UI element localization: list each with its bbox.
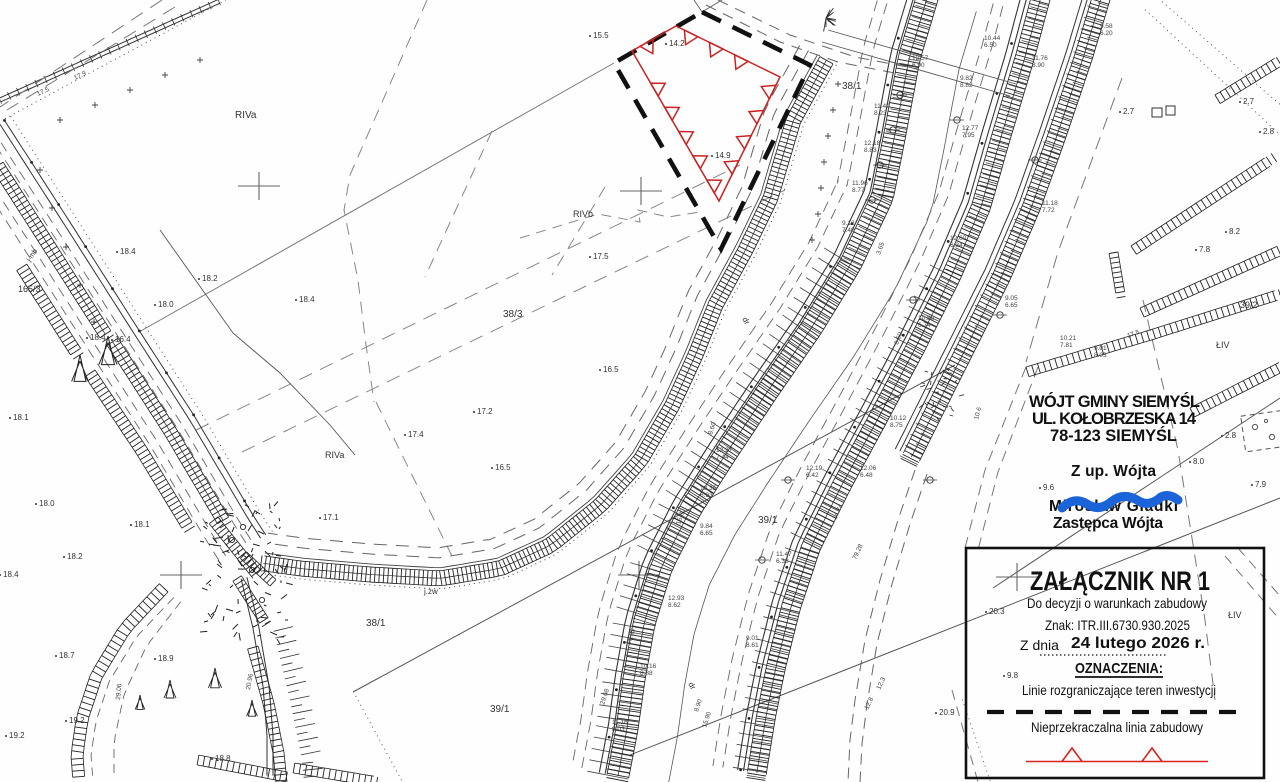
svg-text:7.81: 7.81 (1060, 342, 1073, 349)
svg-text:78-123 SIEMYŚL: 78-123 SIEMYŚL (1050, 426, 1177, 445)
svg-text:18.4: 18.4 (90, 333, 106, 342)
svg-text:16.5: 16.5 (603, 365, 619, 374)
svg-text:12.77: 12.77 (962, 125, 979, 132)
svg-text:12.18: 12.18 (864, 140, 881, 147)
svg-text:18.0: 18.0 (39, 499, 55, 508)
svg-text:9.01: 9.01 (1094, 345, 1107, 352)
svg-text:9.12: 9.12 (842, 220, 855, 227)
svg-text:10.88: 10.88 (918, 315, 935, 322)
svg-text:9.82: 9.82 (960, 75, 973, 82)
svg-text:2.7: 2.7 (1243, 97, 1255, 106)
svg-text:7.9: 7.9 (1255, 480, 1267, 489)
svg-text:18.1: 18.1 (134, 520, 150, 529)
svg-text:18.7: 18.7 (59, 651, 75, 660)
svg-text:165/3: 165/3 (18, 284, 41, 294)
svg-text:18.4: 18.4 (120, 247, 136, 256)
svg-text:Linie rozgraniczające teren in: Linie rozgraniczające teren inwestycji (1022, 683, 1216, 698)
svg-text:6.34: 6.34 (950, 242, 963, 249)
svg-text:11.18: 11.18 (1042, 200, 1058, 207)
svg-text:11.47: 11.47 (776, 551, 792, 558)
svg-text:8.75: 8.75 (890, 422, 903, 429)
svg-text:8.2: 8.2 (1229, 227, 1241, 236)
svg-text:8.23: 8.23 (874, 110, 887, 117)
svg-text:9.6: 9.6 (1043, 483, 1055, 492)
svg-text:8.82: 8.82 (960, 82, 973, 89)
svg-text:OZNACZENIA:: OZNACZENIA: (1075, 660, 1163, 677)
svg-text:7.8: 7.8 (1199, 245, 1211, 254)
svg-text:8.0: 8.0 (1193, 457, 1205, 466)
svg-text:12.57: 12.57 (912, 55, 929, 62)
svg-text:18.9: 18.9 (158, 654, 174, 663)
svg-text:18.1: 18.1 (13, 413, 29, 422)
svg-text:10.21: 10.21 (1060, 335, 1077, 342)
svg-text:2.8: 2.8 (1263, 127, 1275, 136)
svg-text:Zastępca Wójta: Zastępca Wójta (1053, 515, 1163, 532)
svg-text:6.20: 6.20 (1100, 30, 1113, 37)
svg-text:11.96: 11.96 (852, 180, 868, 187)
svg-text:16.4: 16.4 (115, 335, 131, 344)
svg-text:29.06: 29.06 (115, 683, 123, 700)
svg-text:9.8: 9.8 (1007, 671, 1019, 680)
svg-text:18.0: 18.0 (158, 300, 174, 309)
svg-text:Z dnia: Z dnia (1020, 637, 1059, 653)
svg-text:16.5: 16.5 (495, 463, 511, 472)
svg-text:12.60: 12.60 (950, 235, 967, 242)
svg-text:17.4: 17.4 (408, 430, 424, 439)
svg-text:8.62: 8.62 (668, 602, 681, 609)
svg-text:7.95: 7.95 (962, 132, 975, 139)
svg-text:12.19: 12.19 (806, 465, 823, 472)
svg-text:18.4: 18.4 (3, 570, 19, 579)
svg-text:WÓJT GMINY SIEMYŚL: WÓJT GMINY SIEMYŚL (1029, 392, 1200, 411)
svg-text:9.58: 9.58 (1100, 23, 1113, 30)
svg-text:24 lutego 2026 r.: 24 lutego 2026 r. (1071, 635, 1205, 652)
svg-text:10.16: 10.16 (640, 663, 657, 670)
svg-text:9.84: 9.84 (700, 523, 713, 530)
svg-text:11.76: 11.76 (1032, 55, 1048, 62)
svg-text:8.88: 8.88 (640, 670, 653, 677)
svg-text:18.8: 18.8 (215, 754, 231, 763)
svg-text:RIVa: RIVa (235, 110, 257, 121)
svg-text:11.16: 11.16 (612, 719, 628, 726)
svg-text:j.zw: j.zw (423, 587, 438, 596)
svg-text:39/2: 39/2 (1240, 300, 1258, 310)
svg-text:8.61: 8.61 (746, 642, 759, 649)
svg-text:6.65: 6.65 (700, 530, 713, 537)
svg-text:ŁIV: ŁIV (1216, 340, 1230, 350)
svg-text:6.65: 6.65 (1005, 302, 1018, 309)
svg-text:14.2: 14.2 (669, 39, 685, 48)
svg-text:9.05: 9.05 (1005, 295, 1018, 302)
svg-text:6.38: 6.38 (776, 558, 789, 565)
svg-text:12.06: 12.06 (860, 465, 877, 472)
svg-text:6.74: 6.74 (918, 322, 931, 329)
svg-text:17.5: 17.5 (593, 252, 609, 261)
svg-text:ZAŁĄCZNIK NR 1: ZAŁĄCZNIK NR 1 (1030, 566, 1210, 596)
svg-text:2.7: 2.7 (1123, 107, 1135, 116)
svg-text:19.2: 19.2 (9, 731, 25, 740)
svg-text:8.90: 8.90 (1032, 62, 1045, 69)
svg-text:7.40: 7.40 (842, 227, 855, 234)
svg-text:39/1: 39/1 (758, 515, 778, 526)
svg-text:6.93: 6.93 (700, 492, 713, 499)
svg-text:18.4: 18.4 (299, 295, 315, 304)
svg-text:UL. KOŁOBRZESKA 14: UL. KOŁOBRZESKA 14 (1032, 410, 1197, 428)
svg-text:8.03: 8.03 (612, 726, 625, 733)
svg-text:Nieprzekraczalna linia zabudow: Nieprzekraczalna linia zabudowy (1031, 720, 1203, 735)
svg-text:6.48: 6.48 (860, 472, 873, 479)
svg-text:10.44: 10.44 (984, 35, 1001, 42)
svg-text:ŁIV: ŁIV (1228, 610, 1242, 620)
svg-text:Znak: ITR.III.6730.930.2025: Znak: ITR.III.6730.930.2025 (1045, 617, 1190, 633)
svg-text:7.44: 7.44 (716, 454, 729, 461)
svg-text:18.2: 18.2 (67, 552, 83, 561)
svg-text:RIVa: RIVa (325, 450, 344, 460)
svg-text:19.2: 19.2 (69, 716, 85, 725)
svg-text:RIVb: RIVb (573, 209, 593, 219)
svg-text:2.8: 2.8 (1225, 431, 1237, 440)
svg-text:12.93: 12.93 (668, 595, 685, 602)
svg-text:20.9: 20.9 (939, 708, 955, 717)
svg-text:7.72: 7.72 (1042, 207, 1055, 214)
svg-text:20.3: 20.3 (989, 607, 1005, 616)
svg-text:17.1: 17.1 (323, 513, 339, 522)
svg-text:38/3: 38/3 (503, 309, 523, 320)
svg-text:10.12: 10.12 (890, 415, 907, 422)
svg-text:38/1: 38/1 (842, 81, 862, 92)
svg-text:38/1: 38/1 (366, 618, 386, 629)
svg-text:9.01: 9.01 (746, 635, 759, 642)
svg-text:6.42: 6.42 (806, 472, 819, 479)
svg-text:8.03: 8.03 (1094, 352, 1107, 359)
svg-text:6.90: 6.90 (912, 62, 925, 69)
svg-text:17.2: 17.2 (477, 407, 493, 416)
svg-text:11.49: 11.49 (874, 103, 890, 110)
svg-text:18.2: 18.2 (202, 274, 218, 283)
svg-text:12.27: 12.27 (716, 447, 733, 454)
svg-text:Z up. Wójta: Z up. Wójta (1071, 463, 1156, 480)
svg-text:39/1: 39/1 (490, 704, 510, 715)
svg-text:15.5: 15.5 (593, 31, 609, 40)
svg-text:8.83: 8.83 (864, 147, 877, 154)
svg-text:6.50: 6.50 (984, 42, 997, 49)
svg-text:8.77: 8.77 (852, 187, 865, 194)
svg-text:14.9: 14.9 (715, 151, 731, 160)
svg-text:Do decyzji o warunkach zabudow: Do decyzji o warunkach zabudowy (1027, 595, 1207, 611)
svg-text:10.35: 10.35 (700, 485, 717, 492)
